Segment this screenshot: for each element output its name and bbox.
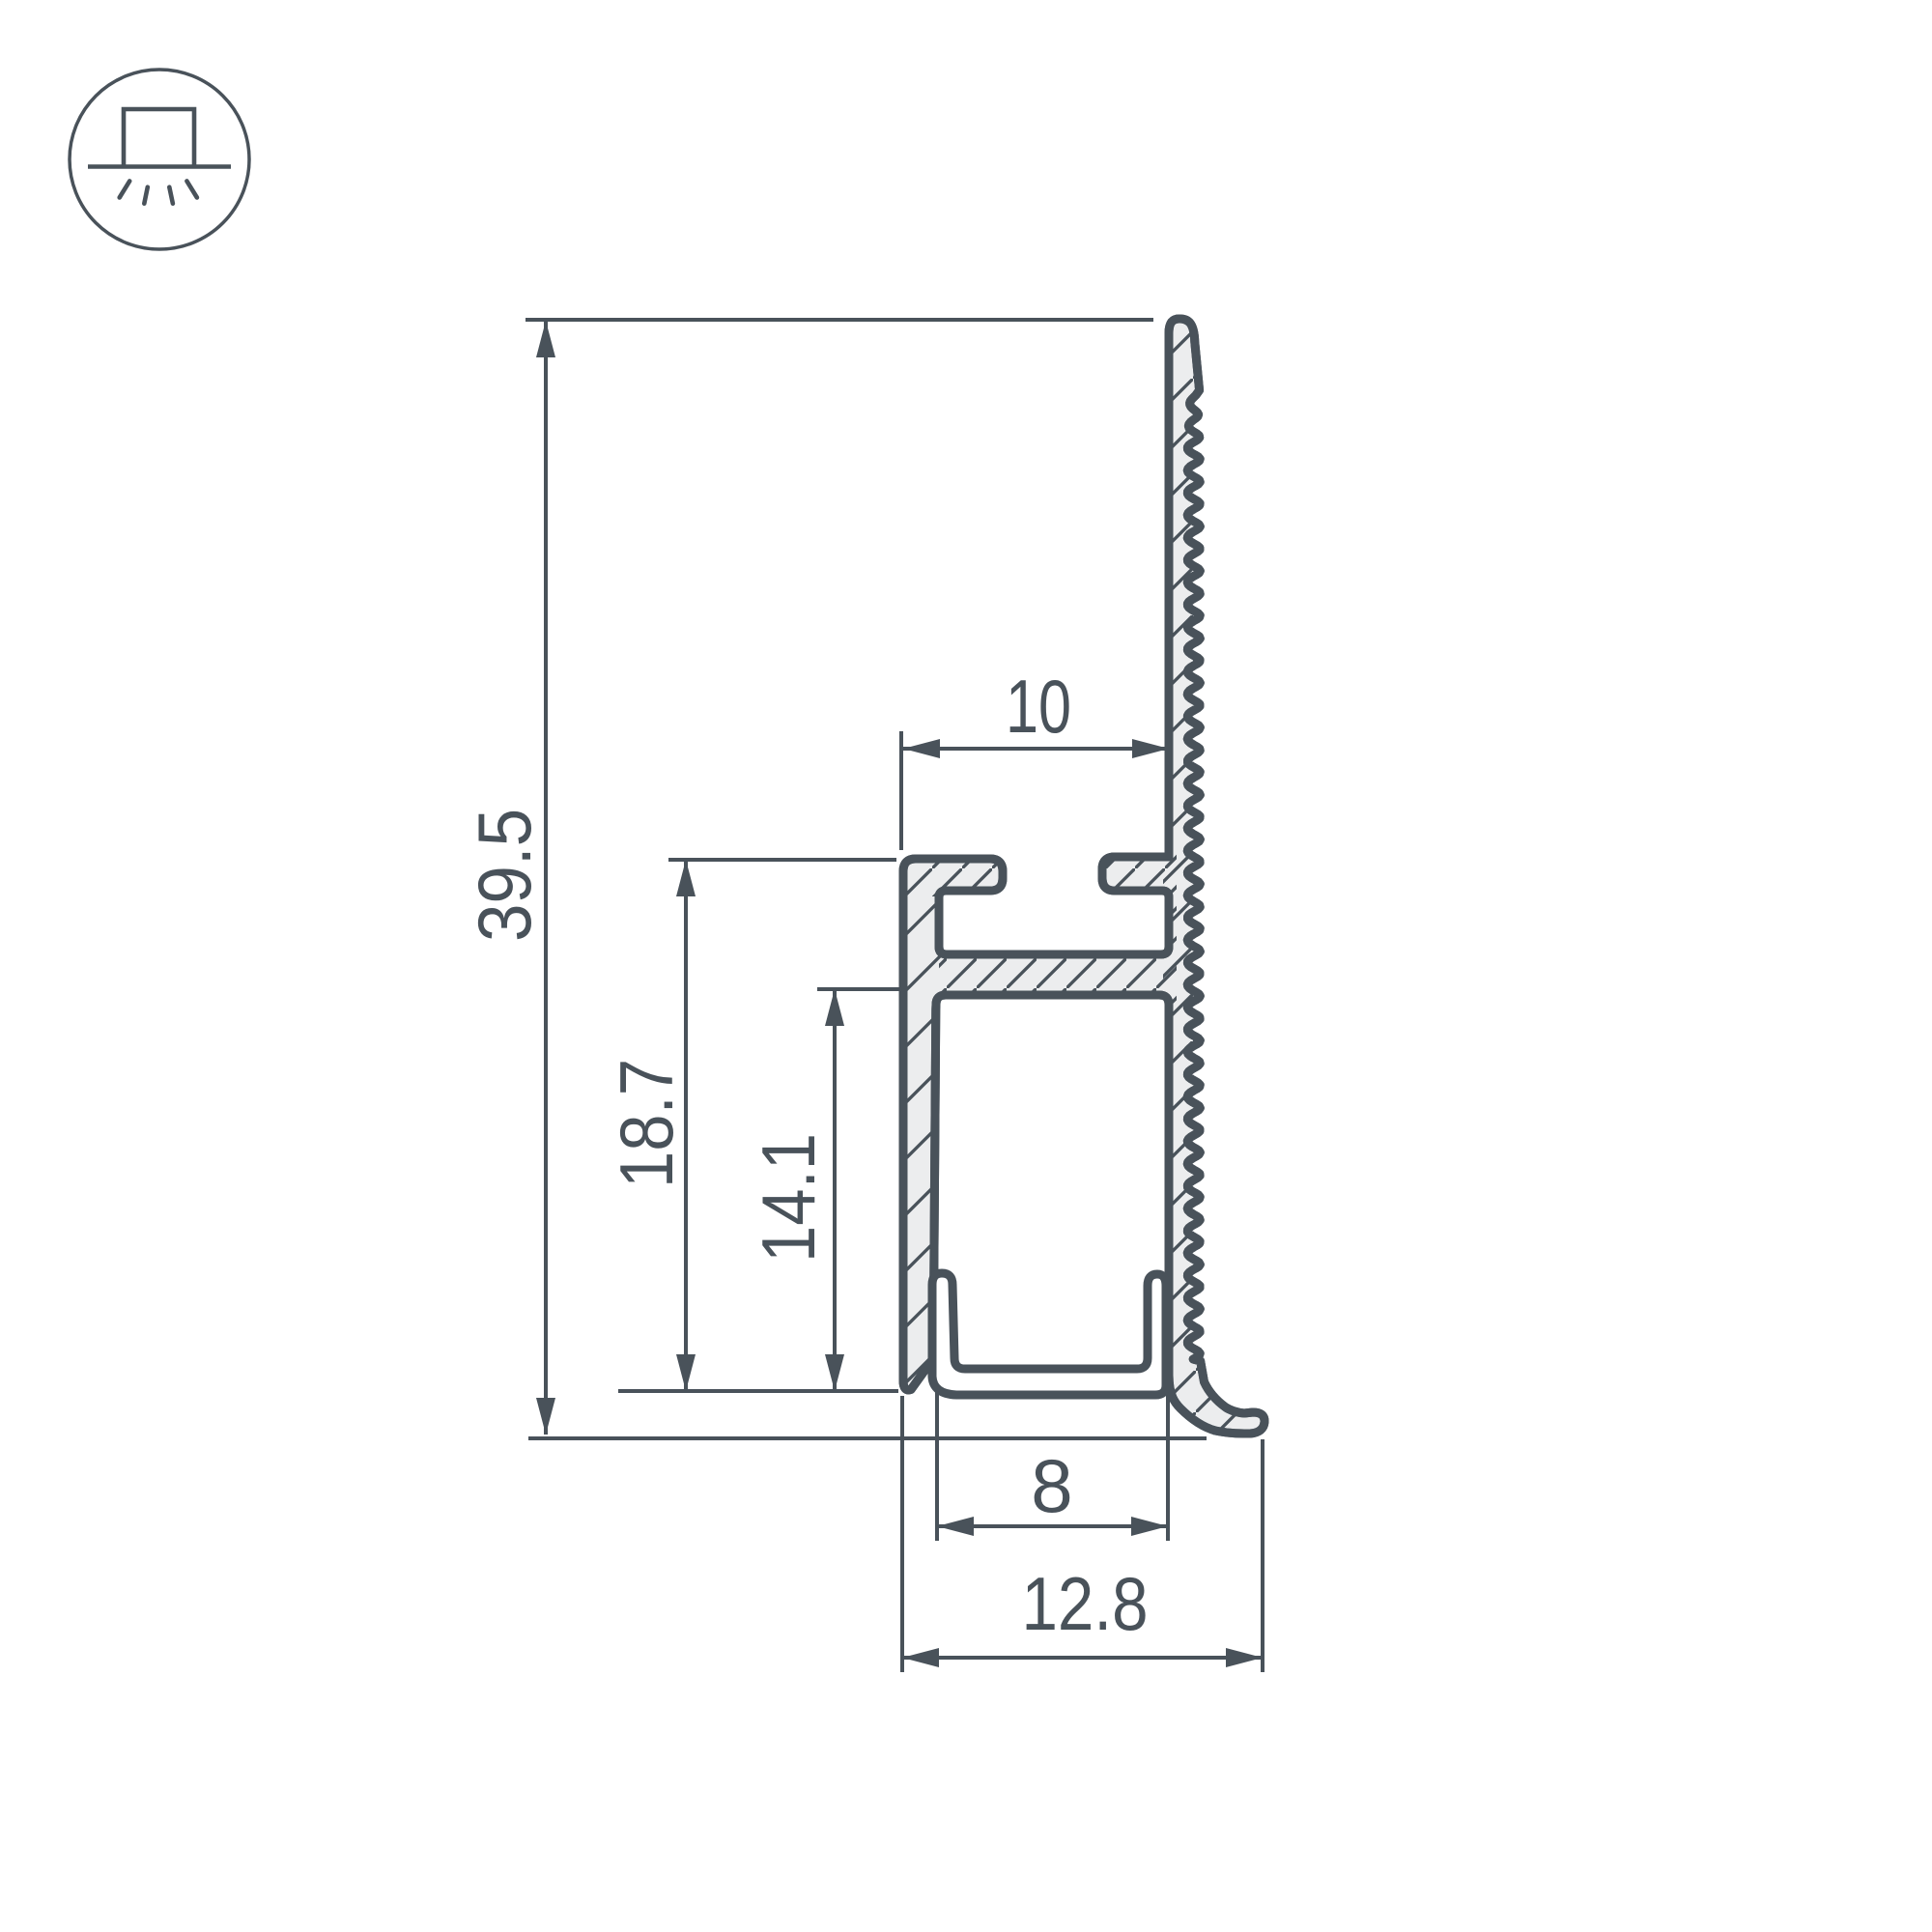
svg-text:14.1: 14.1 — [746, 1133, 831, 1263]
svg-text:8: 8 — [1031, 1443, 1072, 1528]
svg-text:10: 10 — [1006, 664, 1071, 749]
svg-text:39.5: 39.5 — [462, 809, 547, 942]
svg-text:18.7: 18.7 — [604, 1059, 689, 1188]
svg-text:12.8: 12.8 — [1022, 1561, 1149, 1646]
